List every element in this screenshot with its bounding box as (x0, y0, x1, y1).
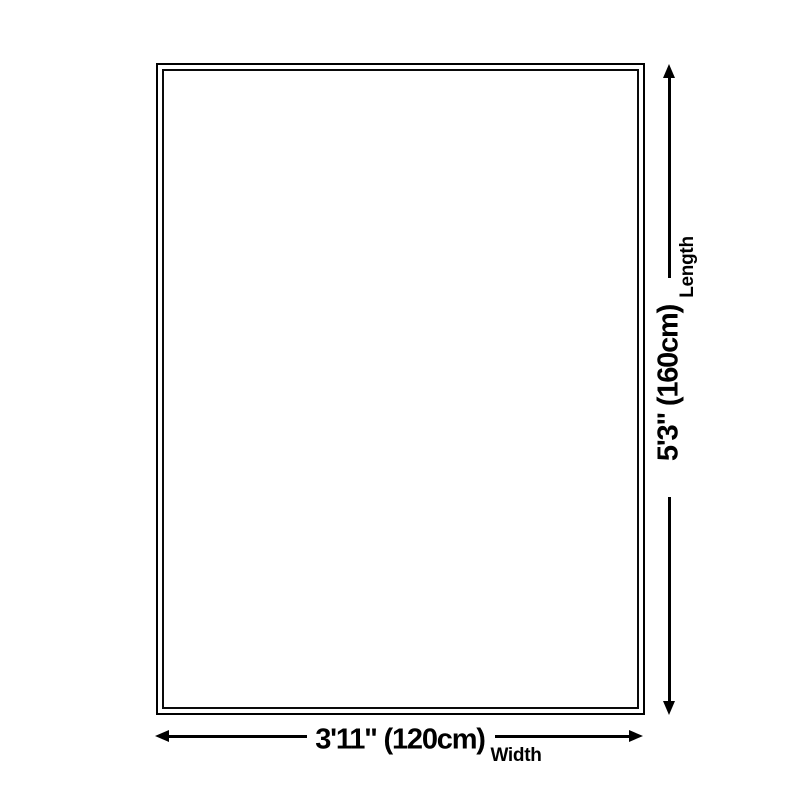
length-label: Length (677, 236, 699, 298)
length-dimension-line-top (668, 77, 671, 278)
arrow-down-icon (663, 701, 675, 715)
arrow-up-icon (663, 64, 675, 78)
arrow-right-icon (629, 730, 643, 742)
rug-rectangle (156, 63, 645, 715)
rug-inner-border (162, 69, 639, 709)
rug-size-diagram: Length 5'3" (160cm) 3'11" (120cm) Width (0, 0, 800, 800)
width-value: 3'11" (120cm) (315, 724, 485, 757)
width-dimension-line-right (495, 735, 631, 738)
width-label: Width (490, 745, 541, 767)
length-value: 5'3" (160cm) (653, 305, 686, 461)
width-dimension-line-left (167, 735, 307, 738)
length-dimension-line-bottom (668, 497, 671, 702)
